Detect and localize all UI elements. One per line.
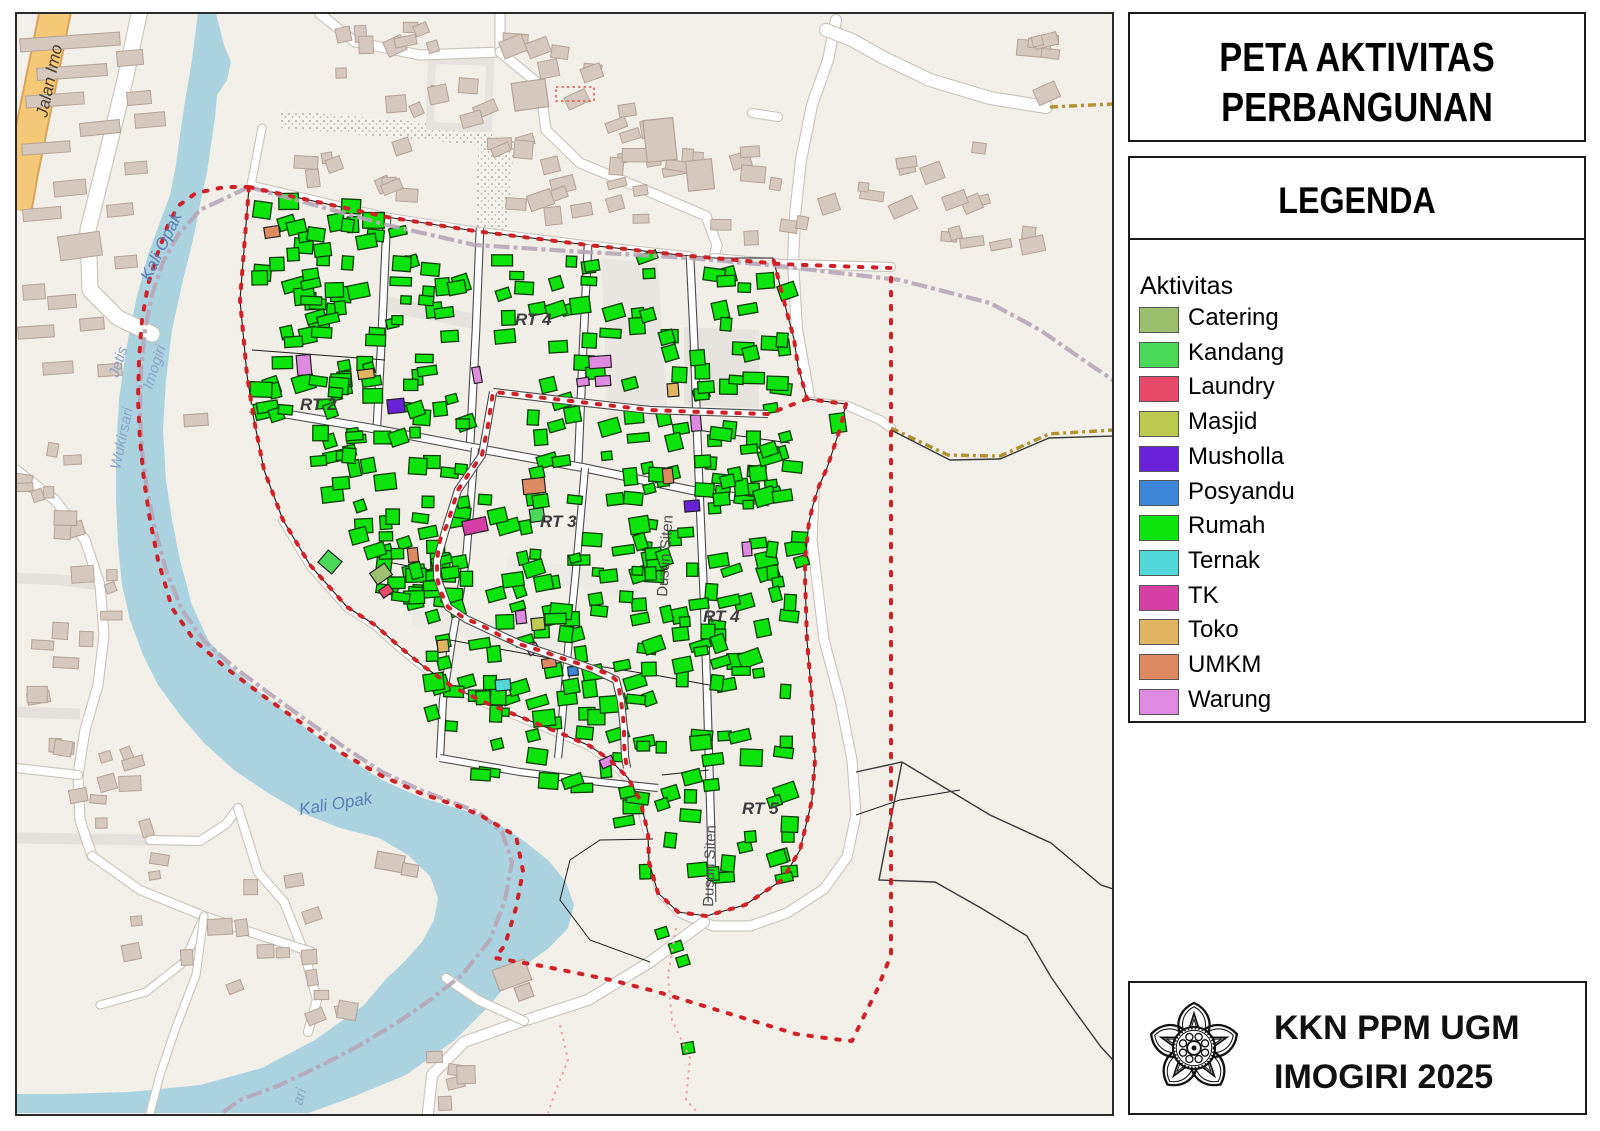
svg-text:RT 3: RT 3 (540, 512, 577, 531)
svg-text:RT 2: RT 2 (300, 395, 337, 414)
svg-text:RT 4: RT 4 (515, 310, 552, 329)
svg-text:RT 5: RT 5 (742, 799, 779, 818)
svg-text:RT 4: RT 4 (703, 607, 740, 626)
svg-text:Dusun Siten: Dusun Siten (700, 825, 720, 907)
